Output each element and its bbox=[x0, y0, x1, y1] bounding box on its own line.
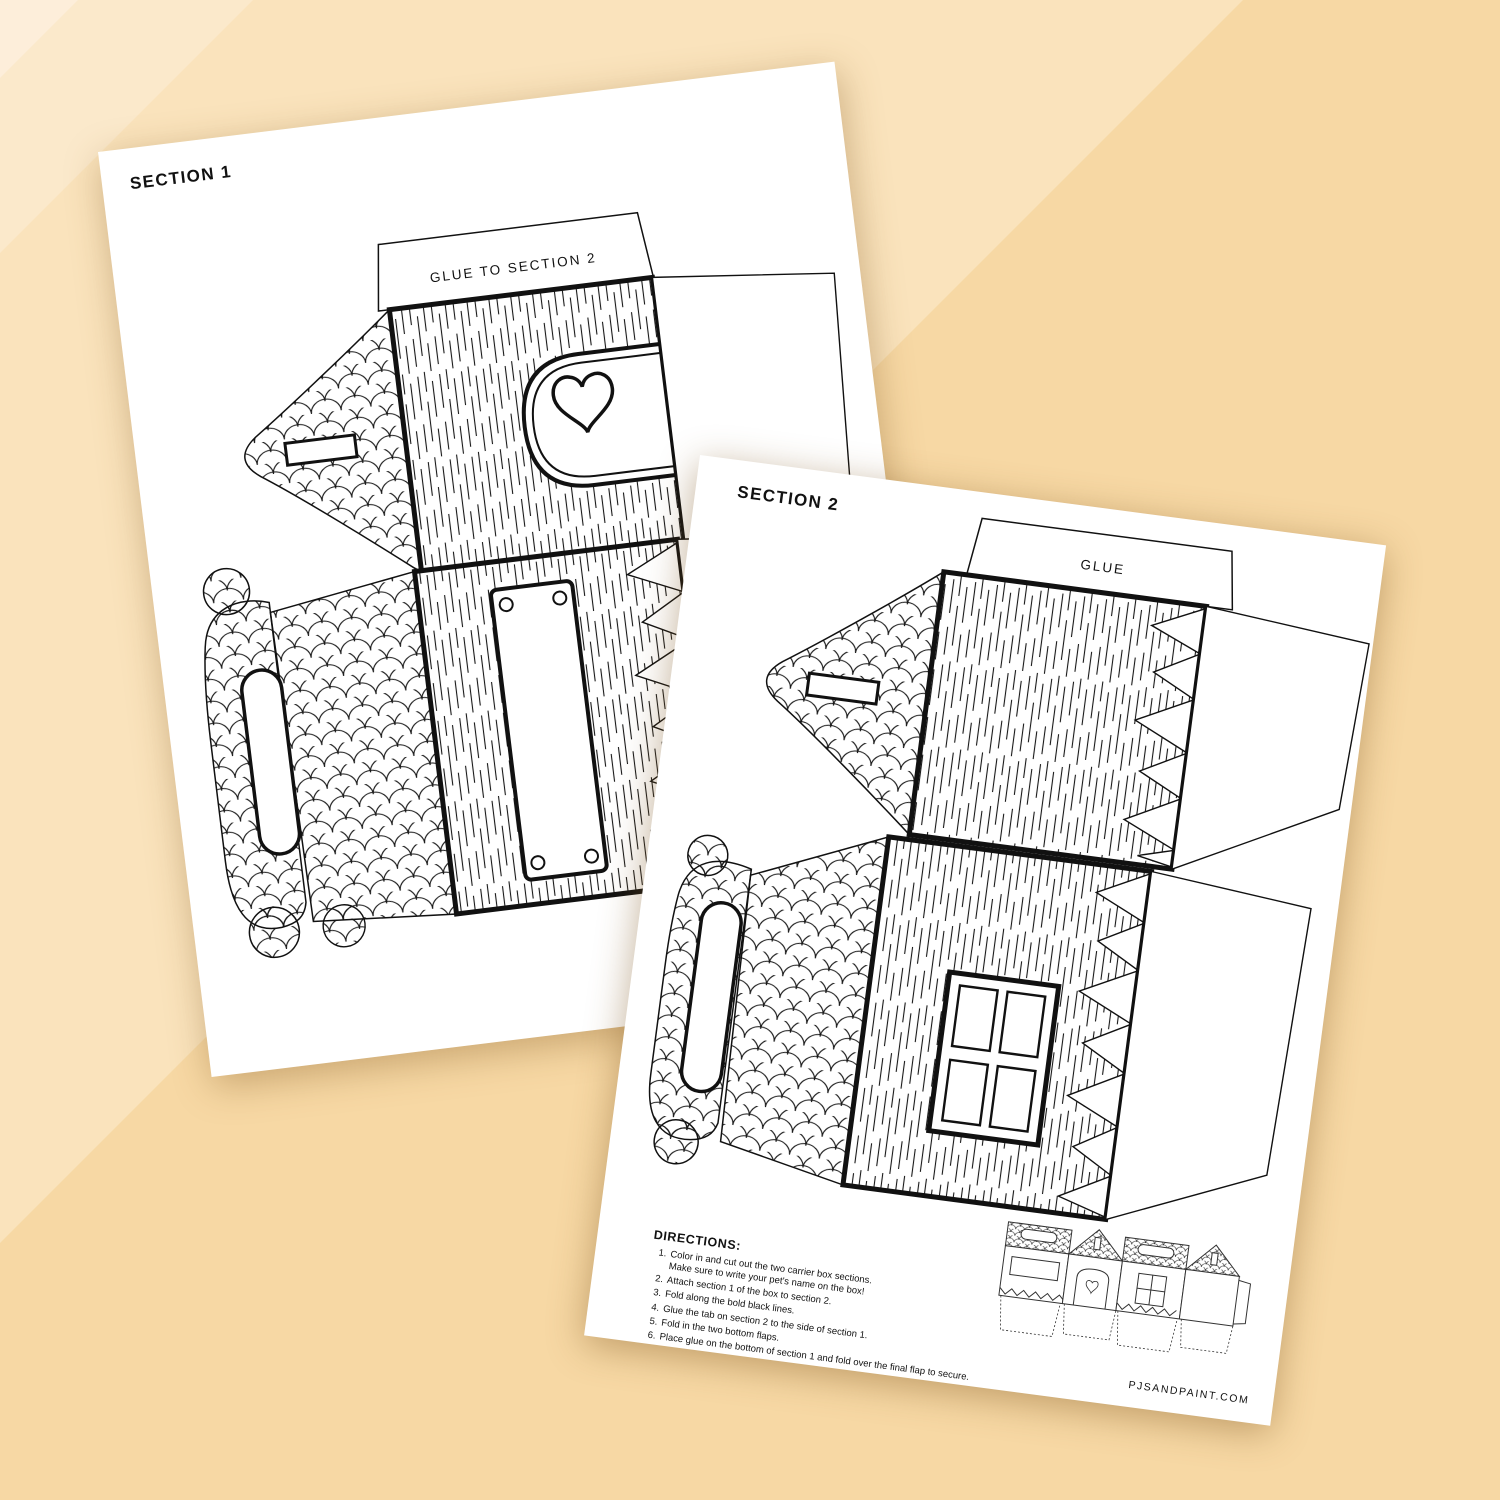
door-wall-panel bbox=[389, 277, 684, 572]
arched-door bbox=[517, 344, 677, 493]
direction-number: 3. bbox=[645, 1286, 661, 1300]
fold-flap bbox=[1172, 606, 1371, 890]
wall-panel bbox=[909, 572, 1206, 869]
direction-number: 2. bbox=[647, 1272, 663, 1286]
direction-number: 4. bbox=[644, 1301, 660, 1315]
printable-page-section-2: SECTION 2 bbox=[584, 455, 1386, 1426]
direction-number: 6. bbox=[640, 1329, 656, 1343]
window-wall-panel bbox=[843, 837, 1152, 1220]
mockup-stage: SECTION 1 bbox=[0, 0, 1500, 1500]
direction-number: 1. bbox=[649, 1247, 667, 1272]
four-pane-window bbox=[929, 972, 1059, 1145]
direction-number: 5. bbox=[642, 1315, 658, 1329]
